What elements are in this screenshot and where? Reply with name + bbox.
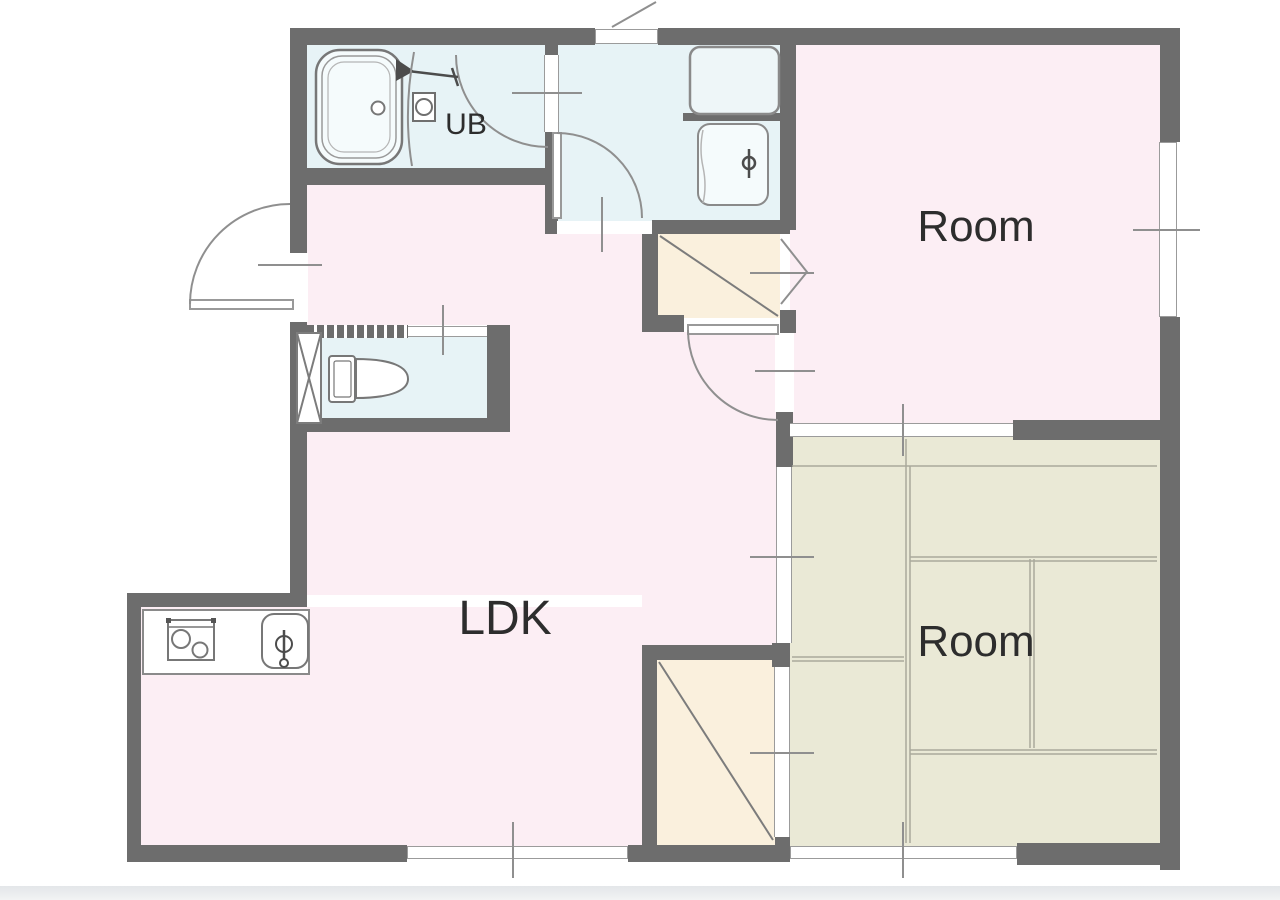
stove-icon	[166, 618, 216, 660]
unit-bath-label: UB	[428, 110, 504, 140]
bath-control-icon	[408, 52, 435, 166]
toilet-icon	[329, 356, 408, 402]
washroom-door	[553, 133, 642, 252]
pipe-shaft-icon	[297, 333, 321, 423]
floor-plan: UB Room LDK Room	[0, 0, 1280, 900]
ldk-label: LDK	[425, 595, 585, 643]
kitchen-sink-icon	[262, 614, 308, 668]
shower-faucet-icon	[396, 59, 458, 86]
room-tatami-label: Room	[878, 620, 1074, 664]
washing-machine-pan-icon	[690, 47, 779, 114]
washbasin-icon	[698, 124, 768, 205]
room-top-door	[688, 325, 815, 420]
bathtub-icon	[316, 50, 402, 164]
closet-upper-symbol	[660, 236, 814, 316]
plan-linework	[0, 0, 1280, 900]
closet-lower-symbol	[659, 662, 814, 840]
room-top-label: Room	[878, 205, 1074, 249]
entrance-door	[190, 204, 322, 309]
